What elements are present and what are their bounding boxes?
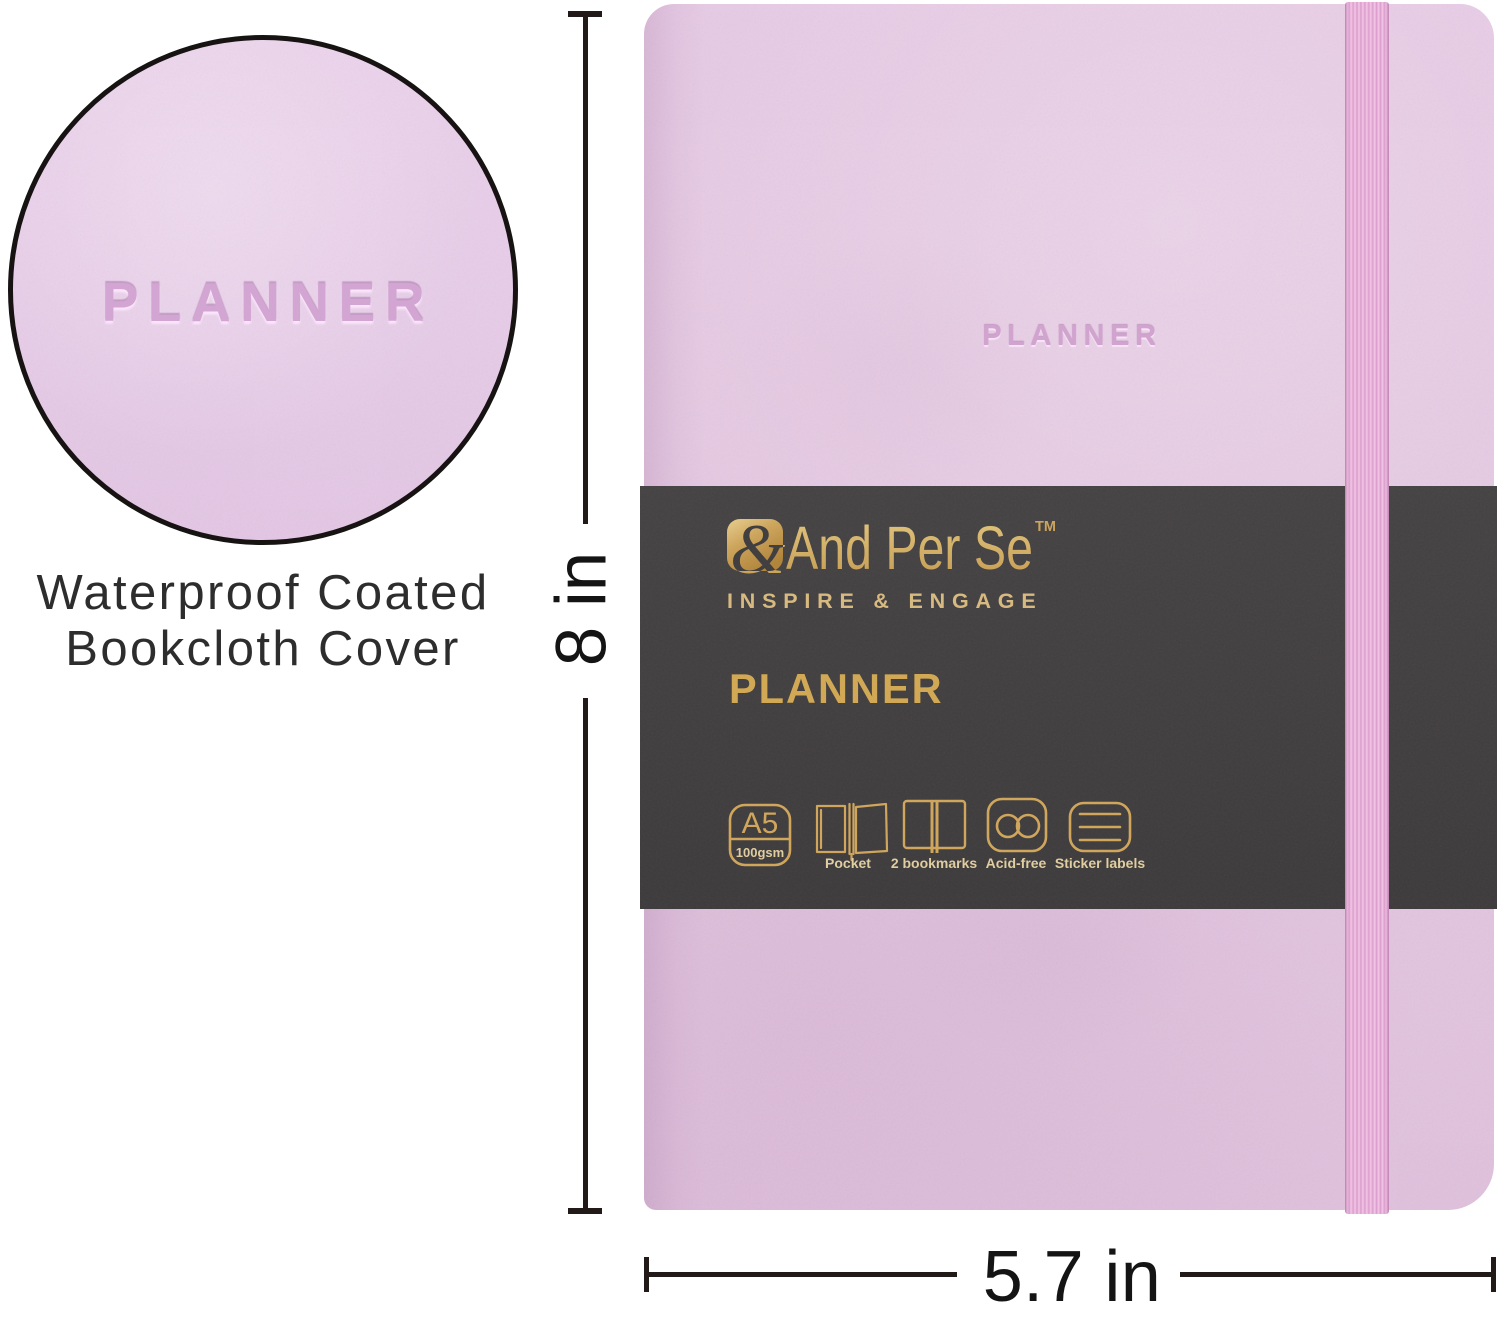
svg-text:Acid-free: Acid-free <box>986 855 1047 871</box>
svg-text:Sticker labels: Sticker labels <box>1055 855 1145 871</box>
svg-text:100gsm: 100gsm <box>736 845 784 860</box>
svg-text:Pocket: Pocket <box>825 855 871 871</box>
svg-text:2 bookmarks: 2 bookmarks <box>891 855 978 871</box>
svg-text:A5: A5 <box>742 807 779 840</box>
